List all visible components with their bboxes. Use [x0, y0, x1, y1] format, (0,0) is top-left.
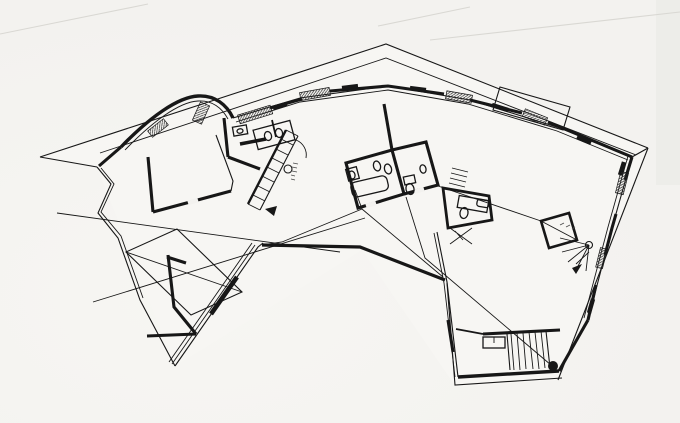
door-gap: [366, 203, 376, 206]
scan-artifacts: [0, 4, 680, 40]
scan-streak: [378, 7, 470, 26]
scan-shade-right: [656, 0, 680, 185]
round-column: [548, 361, 558, 371]
scan-streak: [430, 12, 680, 40]
door-gap: [414, 189, 424, 192]
scan-streak: [0, 4, 148, 34]
door-gap: [188, 200, 198, 203]
floor-plan-drawing: [0, 0, 680, 423]
floor-plan-scan: [0, 0, 680, 423]
